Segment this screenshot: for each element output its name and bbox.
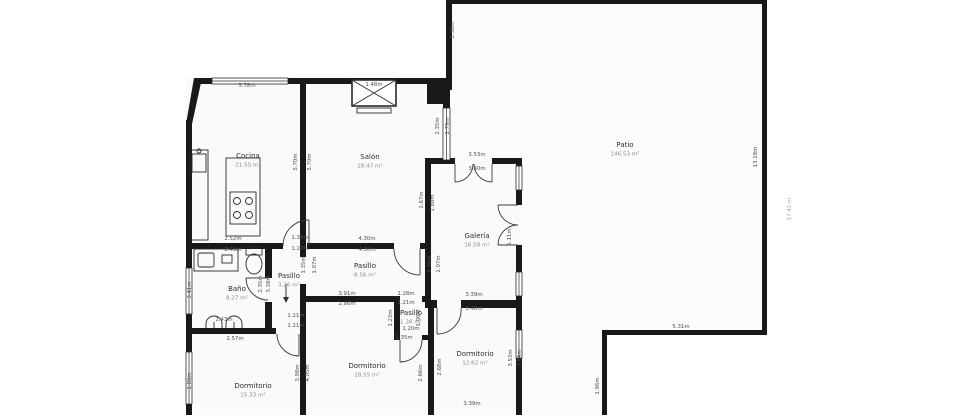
room-area-label: 146.53 m² [610, 151, 639, 158]
dimension-label: 17.42 m [787, 198, 793, 220]
dimension-label: 1.96m [595, 377, 601, 394]
room-area-label: 12.62 m² [462, 360, 487, 367]
room-name-label: Pasillo [354, 262, 376, 270]
room-area-label: 15.33 m² [240, 392, 265, 399]
window-icon [516, 272, 522, 296]
room-name-label: Baño [228, 285, 246, 293]
dimension-label: 3.84m [517, 349, 523, 366]
dimension-label: 3.98m [295, 364, 301, 381]
dimension-label: 2.57m [226, 336, 243, 342]
floorplan-canvas: Cocina21.55 m²Salón28.47 m²Galería16.58 … [0, 0, 960, 415]
dimension-label: 4.30m [358, 236, 375, 242]
floorplan-svg: Cocina21.55 m²Salón28.47 m²Galería16.58 … [0, 0, 960, 415]
dimension-label: 1.28m [397, 291, 414, 297]
room-area-label: 18.55 m² [354, 372, 379, 379]
dimension-label: 3.39m [465, 292, 482, 298]
dimension-label: 2.86m [338, 301, 355, 307]
dimension-label: 3.40m [465, 306, 482, 312]
dimension-label: 3.38m [450, 21, 456, 38]
room-name-label: Patio [616, 141, 633, 149]
dimension-label: 2.52m [224, 236, 241, 242]
dimension-label: 1.23m [388, 309, 394, 326]
dimension-label: 1.27m [291, 246, 308, 252]
dimension-label: 5.31m [672, 324, 689, 330]
dimension-label: 2.68m [437, 358, 443, 375]
room-name-label: Pasillo [278, 272, 300, 280]
dimension-label: 4.05m [305, 364, 311, 381]
dimension-label: 1.35m [301, 256, 307, 273]
dimension-label: 13.18m [753, 147, 759, 168]
window-icon [516, 166, 522, 190]
room-area-label: 21.55 m² [235, 162, 260, 169]
dimension-label: 4.30m [358, 247, 375, 253]
room-name-label: Dormitorio [456, 350, 493, 358]
dimension-label: 1.21m [397, 300, 414, 306]
dimension-label: 3.91m [338, 291, 355, 297]
dimension-label: 3.41m [187, 281, 193, 298]
dimension-label: 3.78m [238, 83, 255, 89]
room-area-label: 3.26 m² [278, 282, 300, 289]
room-name-label: Cocina [236, 152, 260, 160]
dimension-label: 1.21m [287, 323, 304, 329]
room-area-label: 8.56 m² [354, 272, 376, 279]
room-name-label: Dormitorio [348, 362, 385, 370]
dimension-label: 3.53m [508, 349, 514, 366]
dimension-label: 2.79m [445, 117, 451, 134]
dimension-label: 3.38m [266, 275, 272, 292]
dimension-label: 1.35m [395, 335, 412, 341]
dimension-label: 1.21m [287, 313, 304, 319]
dimension-label: 5.70m [307, 153, 313, 170]
dimension-label: 2.35m [258, 275, 264, 292]
room-area-label: 28.47 m² [357, 163, 382, 170]
dimension-label: 5.70m [293, 153, 299, 170]
dimension-label: 1.96m [427, 255, 433, 272]
room-name-label: Dormitorio [234, 382, 271, 390]
dimension-label: 2.35m [435, 117, 441, 134]
dimension-label: 1.34m [291, 235, 308, 241]
dimension-label: 3.40m [468, 166, 485, 172]
dimension-label: 3.39m [463, 401, 480, 407]
dimension-label: 2.07m [436, 255, 442, 272]
dimension-label: 3.53m [468, 152, 485, 158]
room-area-label: 8.27 m² [226, 295, 248, 302]
dimension-label: 1.88m [187, 372, 193, 389]
room-name-label: Galería [464, 232, 489, 240]
dimension-label: 2.66m [418, 364, 424, 381]
dimension-label: 1.07m [312, 256, 318, 273]
dimension-label: 1.48m [365, 82, 382, 88]
room-area-label: 16.58 m² [464, 242, 489, 249]
dimension-label: 2.43m [215, 317, 232, 323]
room-name-label: Salón [360, 153, 379, 161]
dimension-label: 1.00m [416, 309, 422, 326]
dimension-label: 2.67m [419, 191, 425, 208]
dimension-label: 2.43m [224, 247, 241, 253]
dimension-label: 5.11m [507, 228, 513, 245]
dimension-label: 1.88m [430, 194, 436, 211]
